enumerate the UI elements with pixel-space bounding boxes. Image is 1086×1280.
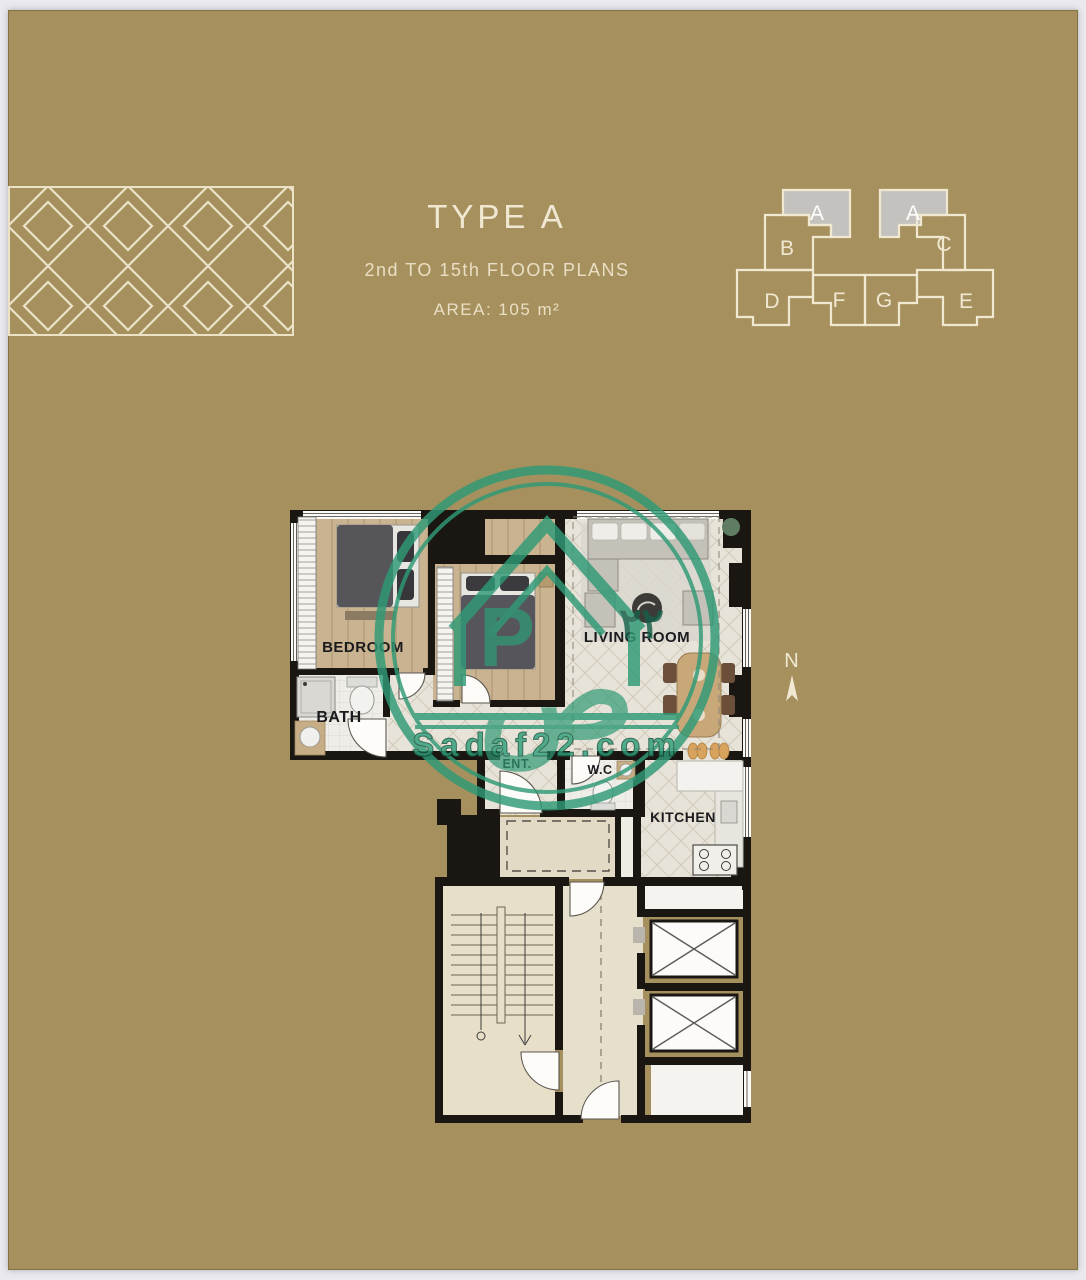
- room-label-ent: ENT.: [502, 757, 531, 771]
- key-unit-b-label: B: [780, 237, 794, 260]
- stove-icon: [693, 845, 737, 875]
- geometric-pattern: [8, 186, 294, 336]
- room-label-bath: BATH: [316, 709, 361, 726]
- room-label-wc: W.C: [587, 763, 612, 777]
- key-unit-c-label: C: [936, 233, 951, 256]
- key-unit-e-label: E: [959, 290, 973, 313]
- key-unit-f-label: F: [833, 289, 846, 312]
- plan-header: TYPE A 2nd TO 15th FLOOR PLANS AREA: 105…: [317, 198, 677, 320]
- closet-icon: [298, 517, 316, 669]
- key-unit-e: [917, 270, 993, 325]
- north-arrow-icon: [784, 675, 800, 701]
- floor-plan: BEDROOM BATH LIVING ROOM ENT. W.C KITCHE…: [285, 505, 755, 1130]
- plan-area-label: AREA: 105 m²: [317, 300, 677, 320]
- room-label-living: LIVING ROOM: [584, 629, 690, 646]
- north-indicator: N: [774, 650, 810, 706]
- closet-icon: [437, 567, 453, 701]
- room-label-bedroom: BEDROOM: [322, 639, 404, 656]
- key-unit-a-right-label: A: [906, 202, 920, 225]
- key-unit-g-label: G: [876, 289, 892, 312]
- armchair-icon: [585, 593, 615, 627]
- armchair-icon: [683, 591, 713, 625]
- plan-type-title: TYPE A: [317, 198, 677, 236]
- north-label: N: [774, 650, 810, 673]
- sink-icon: [295, 721, 325, 755]
- coffee-table-icon: [632, 593, 662, 623]
- room-label-kitchen: KITCHEN: [650, 809, 716, 825]
- plan-floors-subtitle: 2nd TO 15th FLOOR PLANS: [317, 260, 677, 281]
- page: TYPE A 2nd TO 15th FLOOR PLANS AREA: 105…: [0, 0, 1086, 1280]
- key-unit-d-label: D: [764, 290, 779, 313]
- plant-icon: [722, 518, 740, 536]
- key-unit-a-left-label: A: [810, 202, 824, 225]
- brochure-page: TYPE A 2nd TO 15th FLOOR PLANS AREA: 105…: [8, 10, 1078, 1270]
- building-key-plan: A A B C D E F G: [725, 175, 1005, 340]
- bed-icon: [337, 525, 419, 620]
